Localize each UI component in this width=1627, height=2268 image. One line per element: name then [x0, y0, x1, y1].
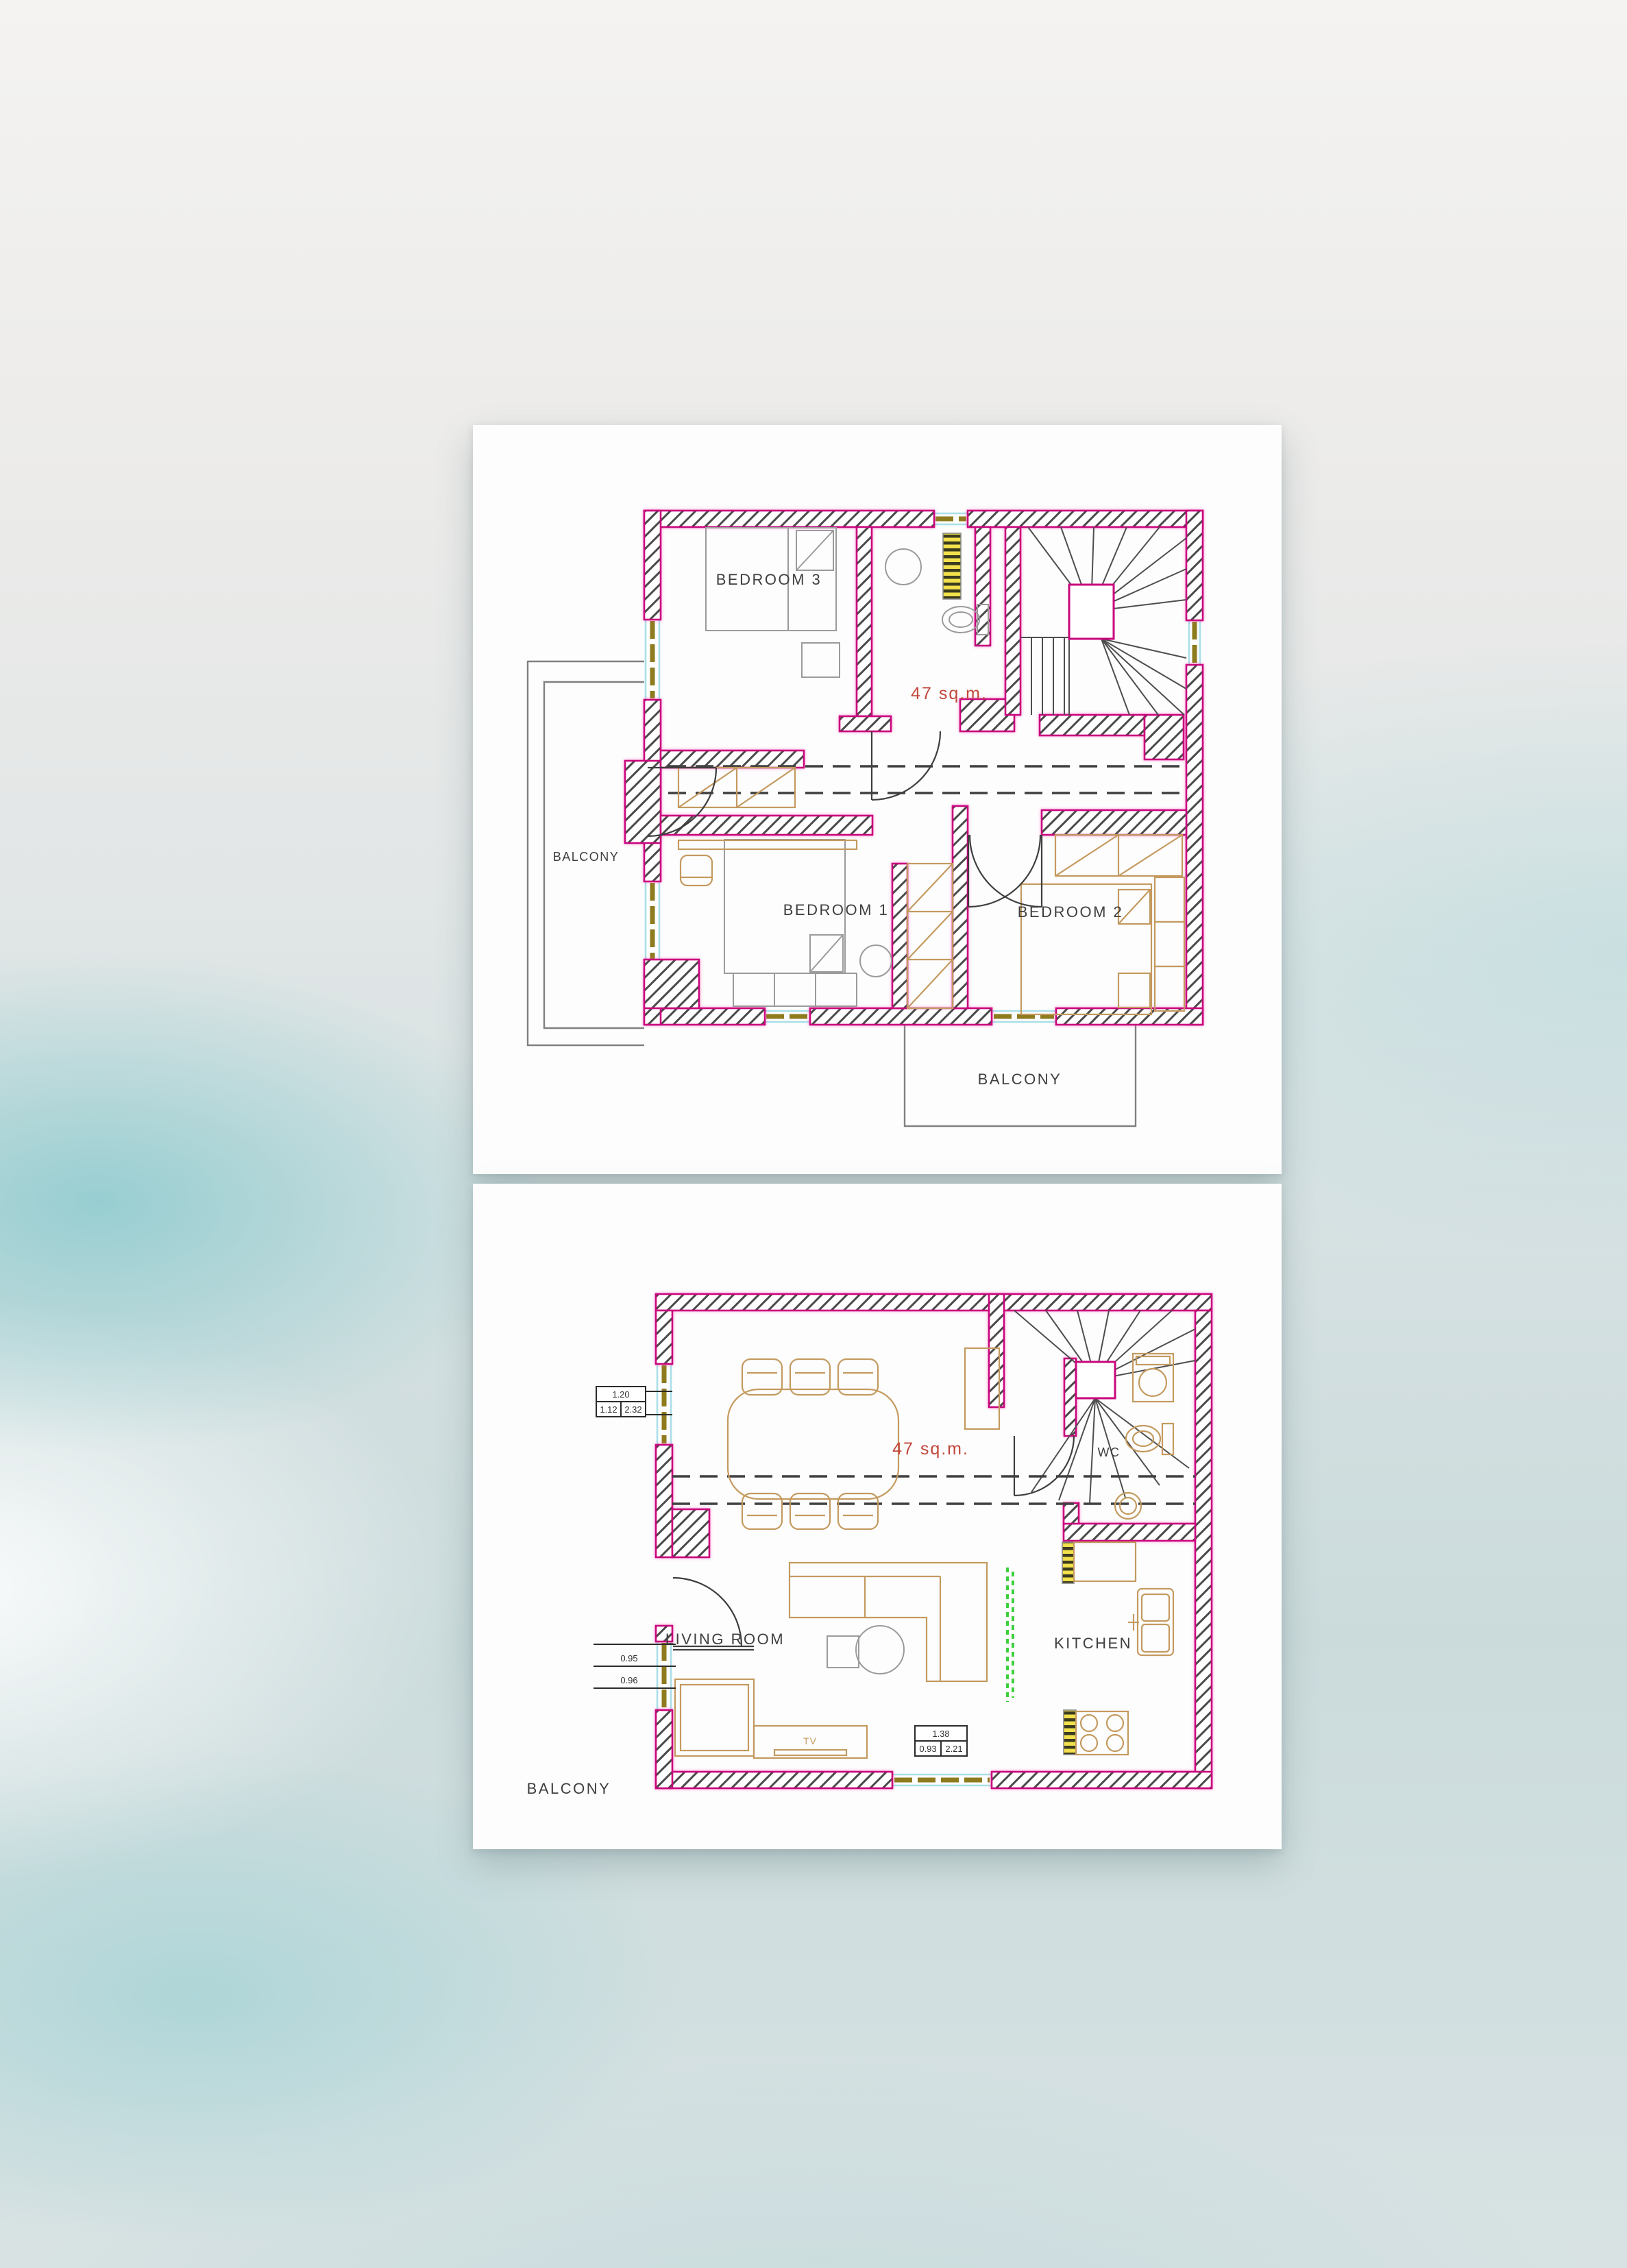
upper-staircase [1020, 527, 1186, 715]
dim-value: 2.21 [945, 1744, 962, 1754]
center-wardrobe [907, 864, 953, 1008]
window-bottom-right [992, 1011, 1056, 1022]
kitchen-green-strip [1007, 1568, 1013, 1702]
bedroom1-label: BEDROOM 1 [783, 901, 890, 918]
lower-windows [657, 1364, 992, 1785]
bedroom1-desk [678, 840, 857, 886]
armchair-table [827, 1626, 904, 1674]
dim-value: 2.32 [624, 1404, 641, 1415]
upper-area-label: 47 sq.m. [911, 684, 988, 703]
dim-value: 1.12 [600, 1404, 617, 1415]
stair-newel [1069, 585, 1114, 639]
kitchen-strip-top [1062, 1542, 1074, 1583]
kitchen-counter [1074, 1542, 1136, 1581]
bathroom-fixtures [885, 533, 988, 635]
lower-staircase [1014, 1310, 1195, 1503]
dim-value: 1.20 [612, 1389, 629, 1400]
bedroom2-label: BEDROOM 2 [1018, 903, 1124, 920]
wc-sink [1115, 1493, 1141, 1519]
dim-value: 0.96 [620, 1675, 637, 1685]
shower-strip [943, 533, 961, 599]
tv-label: TV [803, 1735, 817, 1746]
lower-balcony-label: BALCONY [527, 1780, 611, 1797]
bathroom-sink [885, 549, 921, 585]
stair-newel-lower [1076, 1362, 1115, 1398]
kitchen-label: KITCHEN [1054, 1635, 1132, 1652]
dim-value: 0.95 [620, 1653, 637, 1663]
bedroom3-bed [706, 528, 840, 677]
washing-machine [1133, 1354, 1173, 1402]
dim-value: 1.38 [932, 1729, 949, 1739]
upper-floor-card: BEDROOM 3 BEDROOM 1 BEDROOM 2 47 sq.m. B… [473, 425, 1282, 1174]
kitchen-strip-bottom [1064, 1710, 1076, 1755]
dim-window-bottom: 1.38 0.93 2.21 [915, 1726, 967, 1756]
window-right [1189, 620, 1200, 665]
lower-floor-card: TV [473, 1184, 1282, 1849]
upper-floor-plan: BEDROOM 3 BEDROOM 1 BEDROOM 2 47 sq.m. B… [473, 425, 1282, 1174]
dining-set [728, 1348, 999, 1529]
sofa [790, 1563, 987, 1681]
bedroom1-furniture [678, 840, 892, 1006]
upper-corridor-lines [668, 766, 1182, 793]
window-left-bottom [657, 1642, 671, 1710]
window-left-top [657, 1364, 671, 1445]
window-left-upper [646, 620, 659, 700]
window-bottom-left [765, 1011, 810, 1022]
corner-cabinet [675, 1679, 754, 1756]
window-top [934, 513, 968, 524]
wc-label: WC [1098, 1446, 1121, 1459]
bedroom3-label: BEDROOM 3 [716, 571, 822, 588]
upper-balcony-left-label: BALCONY [553, 850, 620, 864]
stove [1076, 1711, 1128, 1755]
upper-balcony-bottom-label: BALCONY [978, 1071, 1062, 1088]
bedroom1-bed [724, 840, 892, 1006]
kitchen-sink [1128, 1589, 1173, 1655]
living-room-label: LIVING ROOM [665, 1631, 785, 1648]
lower-floor-plan: TV [473, 1184, 1282, 1849]
window-bottom [892, 1775, 992, 1785]
dim-window-left-top: 1.20 1.12 2.32 [596, 1387, 672, 1417]
hallway-closet [678, 768, 795, 807]
dim-value: 0.93 [919, 1744, 936, 1754]
lower-area-label: 47 sq.m. [892, 1439, 969, 1459]
